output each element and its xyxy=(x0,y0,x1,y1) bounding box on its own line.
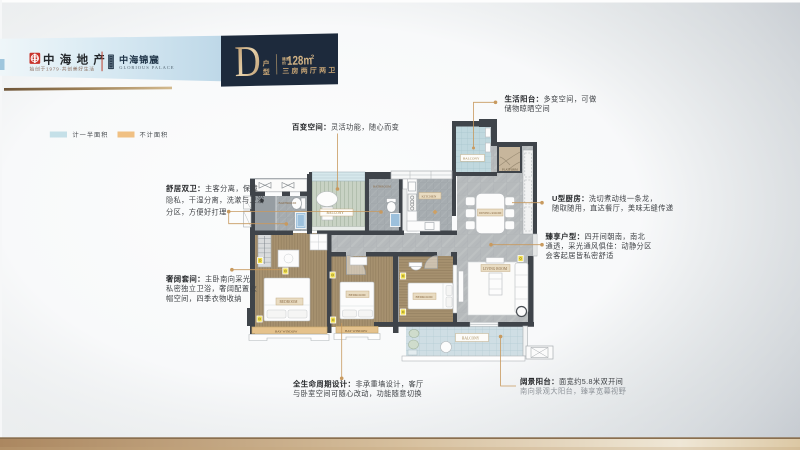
svg-text:臻享户型：四开间朝南，南北: 臻享户型：四开间朝南，南北 xyxy=(546,232,646,241)
svg-text:KITCHEN: KITCHEN xyxy=(422,195,437,199)
svg-text:约: 约 xyxy=(282,60,286,65)
svg-text:LIVING ROOM: LIVING ROOM xyxy=(483,267,508,271)
svg-text:BEDROOM: BEDROOM xyxy=(280,300,299,304)
svg-text:帽空间，四季衣物收纳: 帽空间，四季衣物收纳 xyxy=(166,294,242,303)
svg-text:会客起居皆私密舒适: 会客起居皆私密舒适 xyxy=(546,251,614,260)
svg-text:始创于1979·共创美好生活: 始创于1979·共创美好生活 xyxy=(30,66,95,73)
svg-text:組團: 組團 xyxy=(152,60,160,65)
svg-text:BATHROOM: BATHROOM xyxy=(279,201,297,205)
svg-text:D: D xyxy=(234,36,261,86)
svg-text:与卧室空间可随心改动，功能随意切换: 与卧室空间可随心改动，功能随意切换 xyxy=(293,389,422,398)
svg-text:私密独立卫浴，奢阔配置衣: 私密独立卫浴，奢阔配置衣 xyxy=(166,284,257,293)
svg-text:BEDROOM: BEDROOM xyxy=(349,293,366,297)
svg-text:BALCONY: BALCONY xyxy=(462,336,480,340)
svg-text:计一半面积: 计一半面积 xyxy=(73,131,109,139)
svg-text:舒居双卫：主客分离，保障: 舒居双卫：主客分离，保障 xyxy=(166,184,258,193)
svg-text:分区，方便好打理: 分区，方便好打理 xyxy=(166,207,227,216)
svg-text:BAY WINDOW: BAY WINDOW xyxy=(345,329,368,333)
svg-text:型: 型 xyxy=(263,67,270,76)
svg-text:GLORIOUS PALACE: GLORIOUS PALACE xyxy=(119,65,174,70)
svg-text:DINING ROOM: DINING ROOM xyxy=(479,211,502,215)
svg-text:阔景阳台：面宽约5.8米双开间: 阔景阳台：面宽约5.8米双开间 xyxy=(520,377,623,386)
svg-text:奢阔套间：主卧南向采光: 奢阔套间：主卧南向采光 xyxy=(165,275,251,284)
svg-text:户: 户 xyxy=(263,59,270,68)
svg-text:百变空间：灵活功能，随心而变: 百变空间：灵活功能，随心而变 xyxy=(292,123,399,132)
svg-text:通透，采光通风俱佳：动静分区: 通透，采光通风俱佳：动静分区 xyxy=(546,242,652,251)
svg-text:BAY WINDOW: BAY WINDOW xyxy=(275,329,298,333)
svg-text:不计面积: 不计面积 xyxy=(140,131,169,139)
svg-text:生活阳台：多变空间，可做: 生活阳台：多变空间，可做 xyxy=(505,95,597,104)
svg-text:南向景观大阳台，臻享宽幕视野: 南向景观大阳台，臻享宽幕视野 xyxy=(520,387,626,396)
svg-text:128m: 128m xyxy=(287,54,312,68)
svg-text:隐私，干湿分离，洗漱与卫浴: 隐私，干湿分离，洗漱与卫浴 xyxy=(166,195,265,204)
svg-text:中海地产: 中海地产 xyxy=(43,53,110,67)
svg-text:随取随用，直达餐厅，美味无缝传递: 随取随用，直达餐厅，美味无缝传递 xyxy=(552,204,673,213)
svg-text:BALCONY: BALCONY xyxy=(463,157,480,161)
svg-text:BATHROOM: BATHROOM xyxy=(373,185,391,189)
svg-text:全生命周期设计：非承重墙设计，客厅: 全生命周期设计：非承重墙设计，客厅 xyxy=(292,379,424,388)
svg-text:储物晾晒空间: 储物晾晒空间 xyxy=(505,104,551,113)
svg-text:BEDROOM: BEDROOM xyxy=(416,295,433,299)
svg-text:PLATFORM: PLATFORM xyxy=(502,168,518,172)
svg-text:U型厨房：洗切煮动线一条龙，: U型厨房：洗切煮动线一条龙， xyxy=(552,194,657,203)
